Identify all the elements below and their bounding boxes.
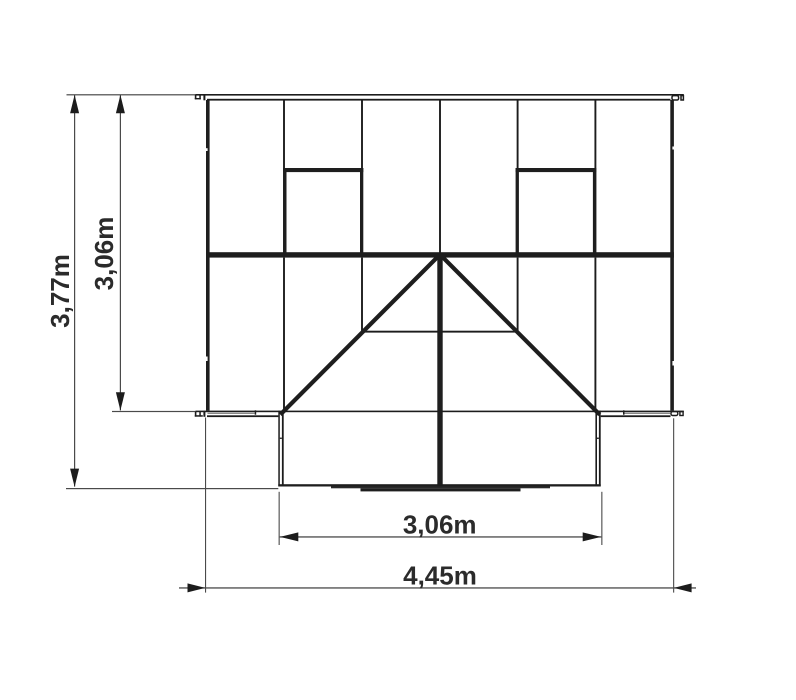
svg-text:3,06m: 3,06m	[89, 217, 119, 291]
svg-text:4,45m: 4,45m	[403, 561, 477, 591]
svg-text:3,77m: 3,77m	[45, 254, 75, 328]
svg-text:3,06m: 3,06m	[403, 510, 477, 540]
